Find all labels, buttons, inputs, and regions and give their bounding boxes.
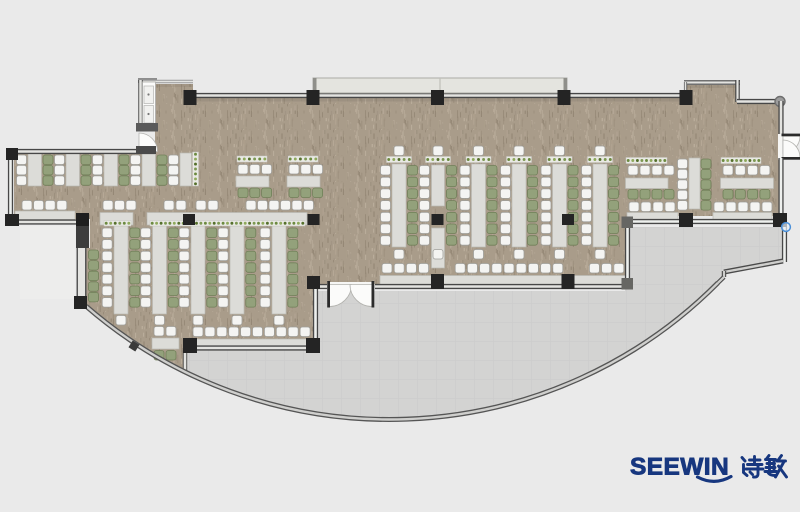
svg-text:SEEWIN: SEEWIN <box>630 454 729 481</box>
